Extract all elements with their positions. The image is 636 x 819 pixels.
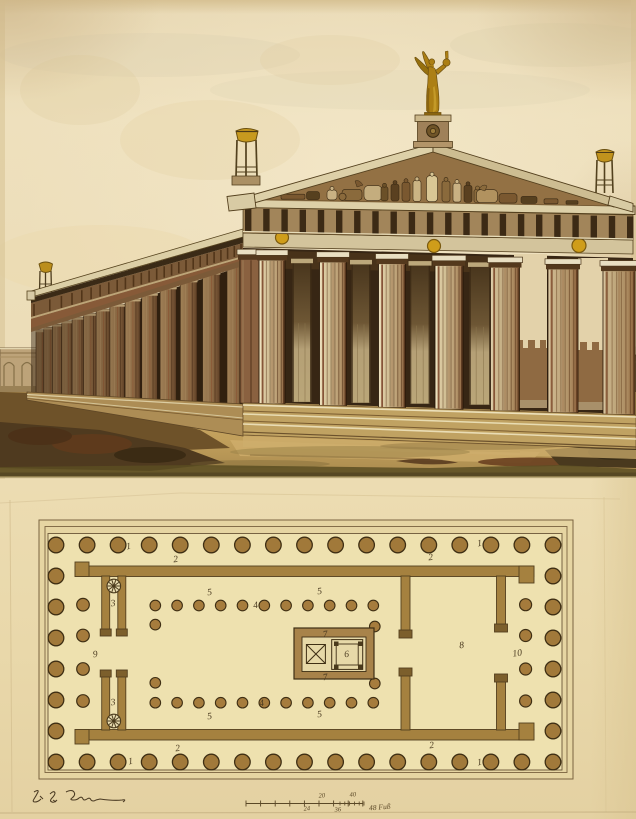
svg-text:10: 10 bbox=[512, 648, 523, 659]
svg-text:36: 36 bbox=[333, 806, 342, 814]
svg-text:48 Fuß: 48 Fuß bbox=[369, 802, 391, 813]
